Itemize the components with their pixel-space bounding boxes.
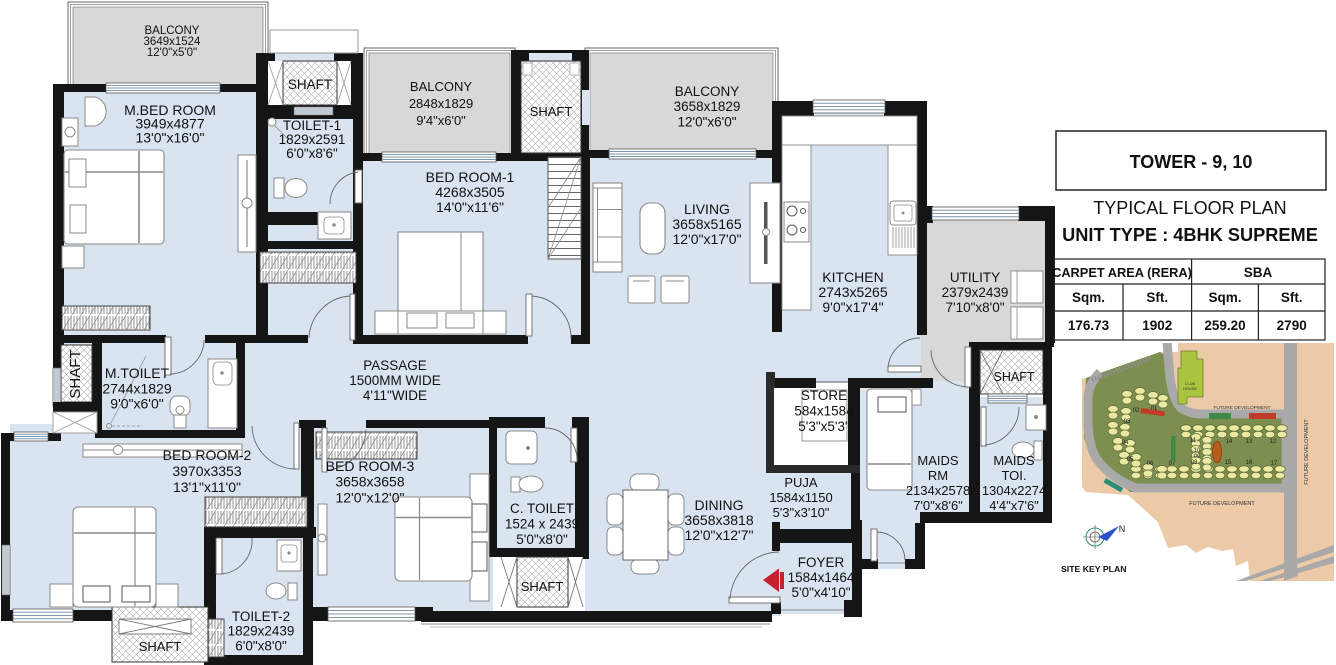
- svg-text:SBA: SBA: [1244, 265, 1273, 280]
- svg-text:2134x2578: 2134x2578: [906, 483, 970, 498]
- svg-text:08: 08: [1191, 460, 1198, 466]
- svg-text:1902: 1902: [1142, 318, 1172, 333]
- svg-text:MAIDS: MAIDS: [917, 453, 959, 468]
- svg-text:1524 x 2439: 1524 x 2439: [505, 517, 579, 532]
- svg-text:5'3"x3'10": 5'3"x3'10": [773, 505, 830, 520]
- svg-text:1500MM WIDE: 1500MM WIDE: [349, 373, 441, 388]
- svg-text:6'0"x8'0": 6'0"x8'0": [235, 638, 287, 653]
- svg-text:17: 17: [1271, 461, 1278, 467]
- svg-text:STORE: STORE: [801, 388, 847, 403]
- svg-text:9'0"x17'4": 9'0"x17'4": [822, 299, 883, 315]
- svg-text:15: 15: [1225, 460, 1232, 466]
- svg-text:14'0"x11'6": 14'0"x11'6": [436, 199, 504, 215]
- svg-text:5'0"x8'0": 5'0"x8'0": [516, 532, 568, 547]
- svg-text:16: 16: [1246, 460, 1253, 466]
- svg-text:2848x1829: 2848x1829: [409, 96, 473, 111]
- svg-text:2743x5265: 2743x5265: [818, 284, 888, 300]
- svg-text:BED ROOM-3: BED ROOM-3: [326, 458, 415, 474]
- svg-text:Sft.: Sft.: [1281, 290, 1303, 305]
- svg-text:BED ROOM-2: BED ROOM-2: [163, 447, 252, 463]
- svg-text:06: 06: [1147, 461, 1154, 467]
- svg-text:SHAFT: SHAFT: [288, 77, 332, 92]
- svg-text:PASSAGE: PASSAGE: [363, 358, 427, 373]
- svg-text:TOI.: TOI.: [1001, 468, 1026, 483]
- svg-text:SHAFT: SHAFT: [521, 579, 564, 594]
- svg-text:6'0"x8'6": 6'0"x8'6": [286, 146, 338, 161]
- svg-text:Sqm.: Sqm.: [1072, 290, 1105, 305]
- svg-text:7'0"x8'6": 7'0"x8'6": [913, 498, 963, 513]
- svg-text:CARPET AREA (RERA): CARPET AREA (RERA): [1052, 265, 1192, 280]
- svg-text:1584x1464: 1584x1464: [788, 570, 855, 585]
- svg-text:10: 10: [1194, 448, 1201, 454]
- svg-text:BALCONY: BALCONY: [410, 79, 472, 94]
- svg-text:12'0"x6'0": 12'0"x6'0": [677, 114, 736, 129]
- svg-text:DINING: DINING: [695, 497, 744, 513]
- svg-text:12'0"x17'0": 12'0"x17'0": [672, 231, 741, 247]
- svg-text:3658x3658: 3658x3658: [335, 474, 405, 490]
- svg-text:584x1584: 584x1584: [794, 404, 854, 419]
- svg-text:04: 04: [1122, 440, 1129, 446]
- svg-text:3658x5165: 3658x5165: [672, 216, 742, 232]
- svg-text:SHAFT: SHAFT: [67, 349, 84, 398]
- svg-text:TYPICAL FLOOR PLAN: TYPICAL FLOOR PLAN: [1093, 198, 1286, 218]
- svg-text:SITE KEY PLAN: SITE KEY PLAN: [1061, 564, 1127, 574]
- svg-text:176.73: 176.73: [1068, 318, 1110, 333]
- svg-text:5'0"x4'10": 5'0"x4'10": [791, 585, 850, 600]
- svg-text:07: 07: [1169, 461, 1176, 467]
- svg-text:12: 12: [1270, 439, 1277, 445]
- svg-text:03: 03: [1124, 419, 1131, 425]
- svg-text:SHAFT: SHAFT: [994, 370, 1035, 384]
- svg-text:4'11"WIDE: 4'11"WIDE: [363, 388, 427, 403]
- svg-text:C. TOILET: C. TOILET: [510, 501, 574, 516]
- svg-text:14: 14: [1226, 439, 1233, 445]
- svg-text:4'4"x7'6": 4'4"x7'6": [989, 498, 1039, 513]
- svg-text:1829x2439: 1829x2439: [228, 624, 295, 639]
- svg-text:7'10"x8'0": 7'10"x8'0": [945, 300, 1004, 315]
- svg-text:KITCHEN: KITCHEN: [822, 269, 883, 285]
- svg-text:12'0"x5'0": 12'0"x5'0": [147, 47, 197, 59]
- svg-text:5'3"x5'3": 5'3"x5'3": [798, 419, 850, 434]
- svg-text:RM: RM: [928, 468, 948, 483]
- svg-text:13: 13: [1246, 439, 1253, 445]
- svg-text:1584x1150: 1584x1150: [769, 490, 832, 505]
- svg-text:TOILET-1: TOILET-1: [283, 118, 341, 133]
- svg-text:1829x2591: 1829x2591: [279, 132, 346, 147]
- svg-text:3658x3818: 3658x3818: [684, 512, 754, 528]
- svg-text:Sqm.: Sqm.: [1208, 290, 1241, 305]
- svg-text:4268x3505: 4268x3505: [435, 184, 505, 200]
- svg-text:2790: 2790: [1277, 318, 1307, 333]
- svg-text:09: 09: [1194, 454, 1201, 460]
- svg-text:Sft.: Sft.: [1146, 290, 1168, 305]
- svg-text:FUTURE DEVELOPMENT: FUTURE DEVELOPMENT: [1189, 501, 1255, 507]
- svg-text:LIVING: LIVING: [684, 201, 730, 217]
- svg-text:259.20: 259.20: [1204, 318, 1245, 333]
- svg-text:UTILITY: UTILITY: [950, 270, 1000, 285]
- svg-text:FOYER: FOYER: [798, 555, 845, 570]
- svg-text:CLUB: CLUB: [1185, 382, 1196, 386]
- svg-text:3658x1829: 3658x1829: [674, 99, 741, 114]
- svg-text:1304x2274: 1304x2274: [982, 483, 1046, 498]
- svg-text:SHAFT: SHAFT: [530, 104, 573, 119]
- svg-text:2744x1829: 2744x1829: [102, 380, 172, 396]
- svg-text:11: 11: [1190, 438, 1197, 444]
- svg-text:PUJA: PUJA: [784, 475, 818, 490]
- svg-text:BED ROOM-1: BED ROOM-1: [426, 169, 515, 185]
- svg-text:SHAFT: SHAFT: [139, 639, 182, 654]
- svg-text:MAIDS: MAIDS: [993, 453, 1035, 468]
- svg-text:N: N: [1119, 524, 1126, 534]
- svg-text:TOWER - 9, 10: TOWER - 9, 10: [1130, 152, 1253, 172]
- svg-text:13'1"x11'0": 13'1"x11'0": [173, 479, 241, 495]
- svg-text:BALCONY: BALCONY: [675, 84, 740, 99]
- svg-text:13'0"x16'0": 13'0"x16'0": [135, 129, 204, 145]
- svg-text:02: 02: [1133, 408, 1140, 414]
- svg-text:2379x2439: 2379x2439: [942, 285, 1009, 300]
- svg-text:FUTURE DEVELOPMENT: FUTURE DEVELOPMENT: [1213, 405, 1270, 411]
- svg-text:TOILET-2: TOILET-2: [232, 609, 290, 624]
- svg-text:05: 05: [1127, 457, 1134, 463]
- svg-text:12'0"x12'7": 12'0"x12'7": [684, 527, 753, 543]
- svg-text:M.TOILET: M.TOILET: [105, 365, 170, 381]
- svg-text:FUTURE DEVELOPMENT: FUTURE DEVELOPMENT: [1304, 419, 1310, 485]
- svg-text:HOUSE: HOUSE: [1183, 387, 1197, 391]
- svg-text:UNIT TYPE : 4BHK SUPREME: UNIT TYPE : 4BHK SUPREME: [1062, 225, 1318, 245]
- svg-text:9'0"x6'0": 9'0"x6'0": [110, 396, 163, 412]
- svg-text:3970x3353: 3970x3353: [172, 463, 242, 479]
- svg-text:9'4"x6'0": 9'4"x6'0": [416, 113, 466, 128]
- svg-text:12'0"x12'0": 12'0"x12'0": [335, 489, 404, 505]
